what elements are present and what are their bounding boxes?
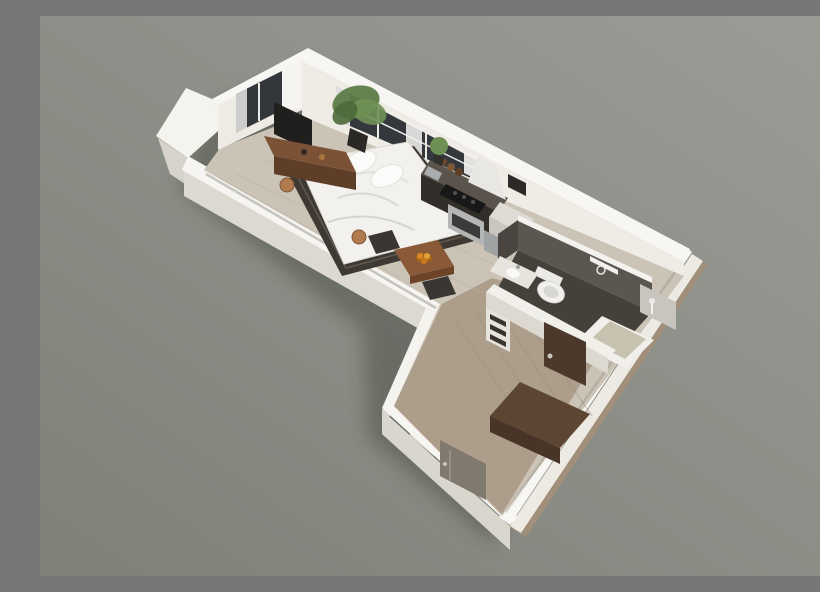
floor-plan-render: [40, 16, 820, 576]
burner-2: [462, 195, 466, 199]
fruit-1: [417, 253, 423, 259]
counter-canister-3: [455, 168, 463, 176]
counter-canister-2: [447, 163, 455, 171]
wicker-lamp-1: [280, 178, 294, 192]
burner-3: [471, 200, 475, 204]
fruit-3: [421, 258, 427, 264]
wicker-lamp-2: [352, 230, 366, 244]
west-curtain-left: [236, 88, 247, 133]
counter-plant-foliage: [430, 137, 448, 155]
entry-door-handle: [548, 354, 553, 359]
floor-plan-figure: [40, 16, 820, 576]
burner-1: [453, 191, 457, 195]
closet-door-handle: [443, 462, 447, 466]
fruit-2: [424, 253, 430, 259]
console-decor-dark: [301, 149, 307, 155]
vanity-faucet: [516, 265, 520, 269]
west-curtain-right: [282, 61, 302, 112]
shower-head: [649, 298, 655, 304]
console-decor-light: [319, 154, 325, 160]
